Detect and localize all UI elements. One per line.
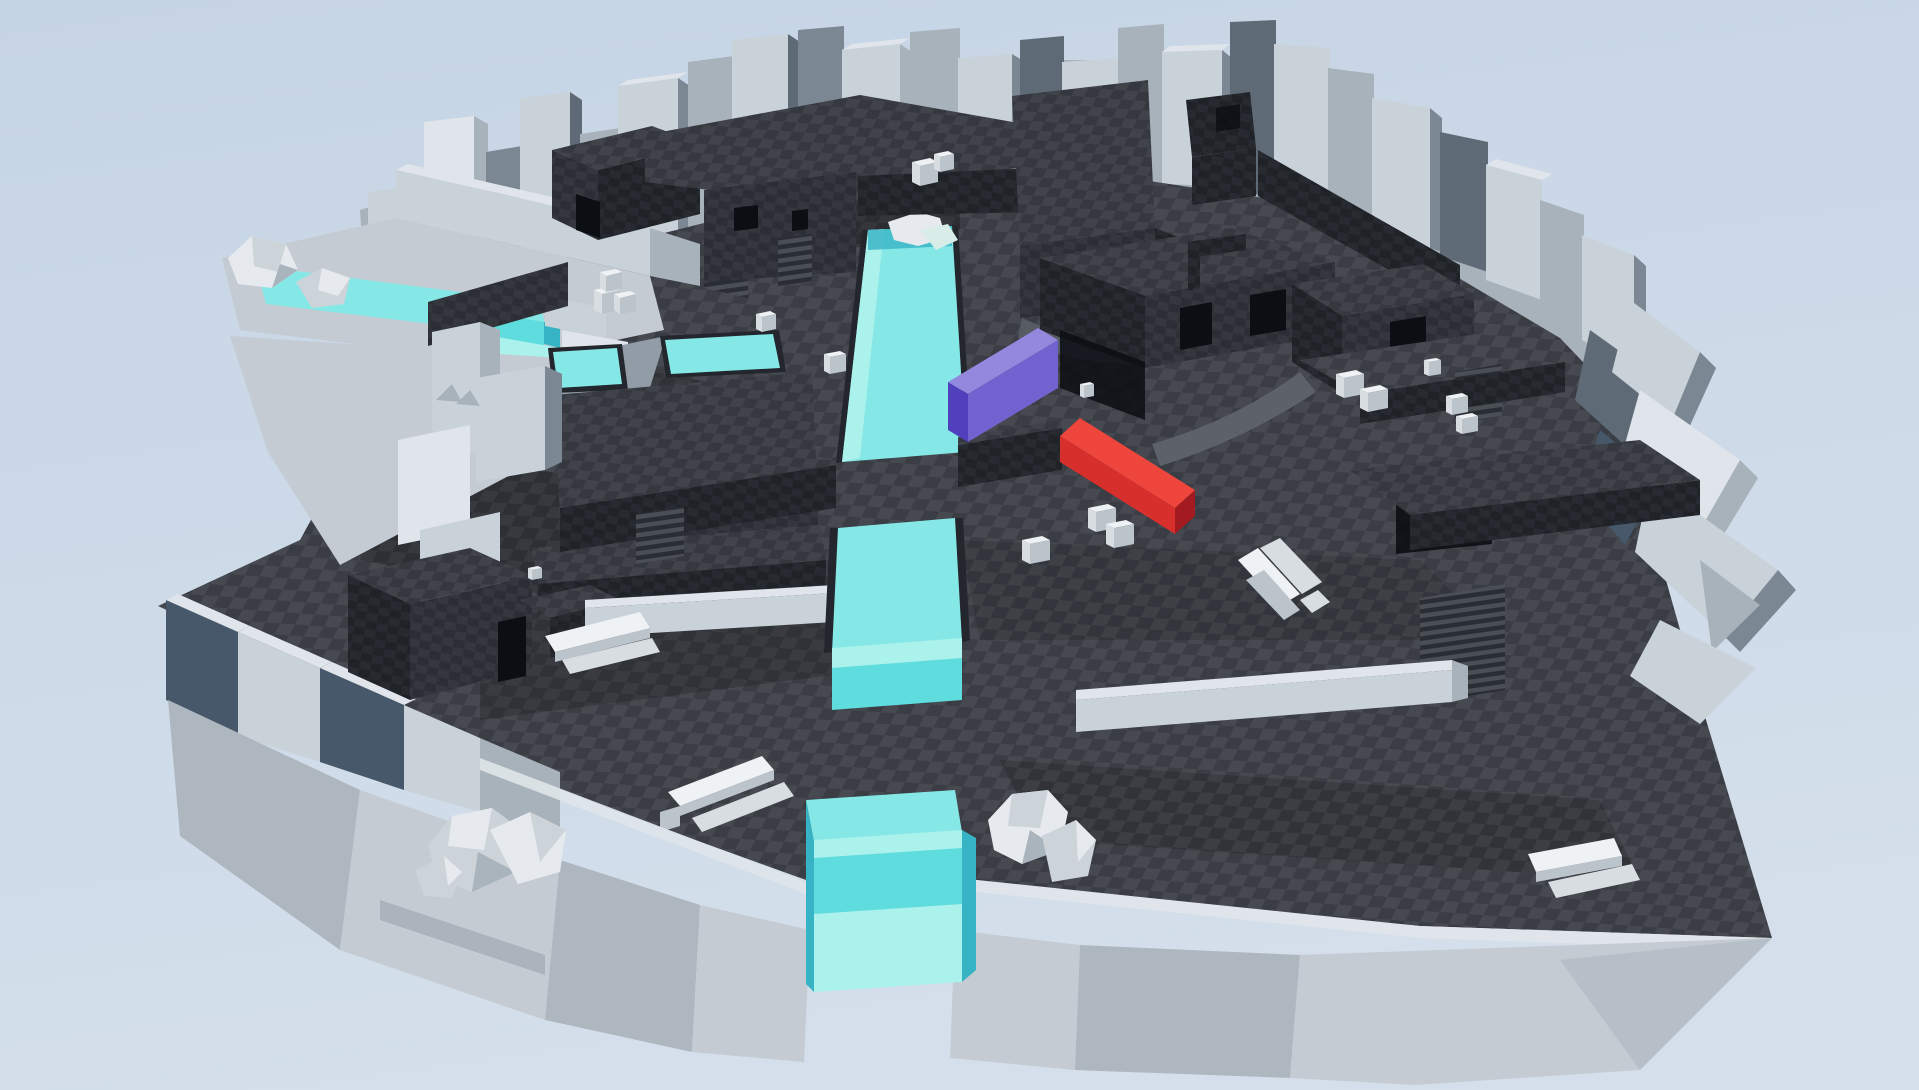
rim-tower-front [1486, 165, 1542, 300]
crate-front [1088, 508, 1096, 532]
crate-front [1360, 389, 1368, 412]
waterfall-face-bright [814, 904, 962, 992]
crate-side [1452, 396, 1468, 415]
big-building-roof [1012, 80, 1155, 246]
crate-side [1368, 389, 1388, 412]
crate-side [762, 314, 776, 332]
crate-side [1462, 416, 1478, 434]
bridge-crate-front [912, 162, 920, 186]
waterfall-side [962, 830, 976, 982]
bridge-stairs [778, 234, 812, 286]
right-platform-window [1250, 289, 1286, 336]
crate-front [1336, 374, 1344, 398]
notch-tower-opening [1216, 104, 1240, 132]
rim-tower-front [1540, 200, 1584, 330]
deck-pool [553, 348, 622, 388]
deck-pool [665, 334, 780, 374]
river-middle [832, 518, 962, 652]
notch-tower-front [1192, 148, 1256, 205]
crate-front [1106, 524, 1114, 548]
crate-front [1080, 384, 1084, 398]
crate-side [1114, 524, 1134, 548]
crate-front [756, 314, 762, 332]
grey-block-side [545, 366, 562, 470]
crate-front [1424, 360, 1429, 376]
base-slab [692, 905, 810, 1062]
grey-block [476, 366, 545, 482]
level-render-viewport[interactable] [0, 0, 1919, 1090]
bridge-window [792, 209, 808, 231]
crate-front [528, 568, 532, 580]
mid-ledge-stairs [636, 506, 684, 564]
crate-side [532, 568, 542, 580]
bridge-crate-side [940, 154, 954, 172]
bridge-band [858, 168, 1032, 216]
crate-side [830, 354, 846, 374]
crate-front [594, 290, 602, 314]
right-platform-window [1180, 302, 1212, 350]
long-wall-return [1452, 660, 1468, 702]
base-slab [1075, 945, 1300, 1078]
crate-side [1429, 360, 1441, 376]
bridge-crate-front [934, 154, 940, 172]
crate-front [1446, 396, 1452, 415]
bridge-window [734, 205, 758, 231]
crate-front [1022, 540, 1030, 564]
rim-tower-front [1440, 132, 1488, 272]
crate-front [1456, 416, 1462, 434]
crate-front [824, 354, 830, 374]
door-frame-post [1188, 240, 1200, 290]
crate-side [1030, 540, 1050, 564]
crate-side [1084, 384, 1094, 398]
game-screenshot-stage [0, 0, 1919, 1090]
lowleft-building-doorway [498, 616, 526, 682]
